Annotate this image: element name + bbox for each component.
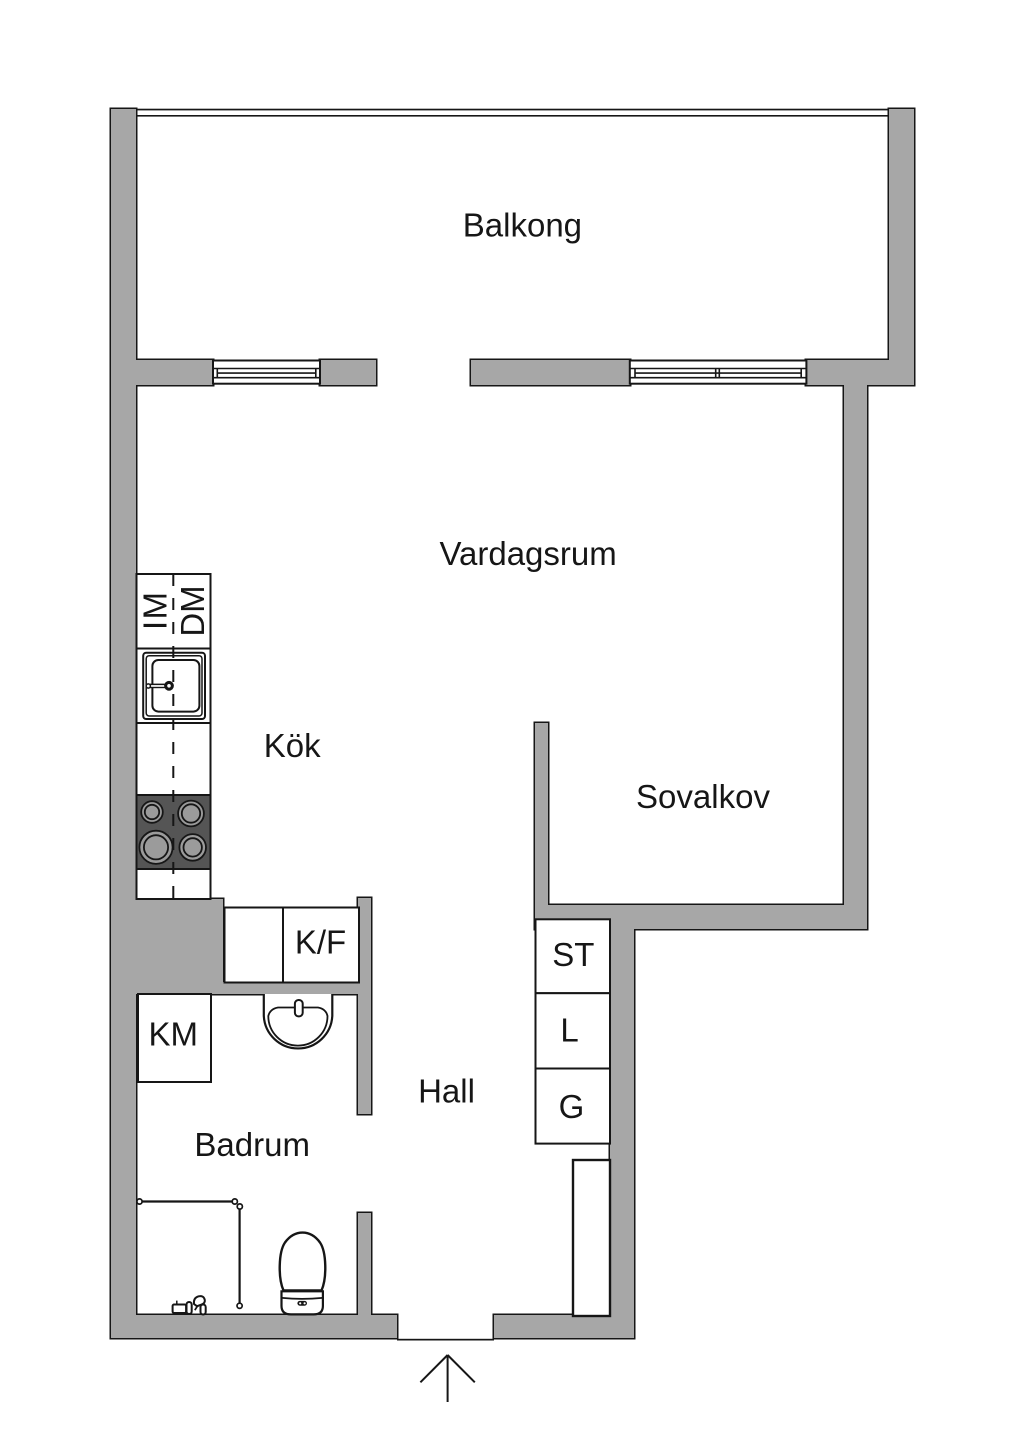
- svg-text:KM: KM: [149, 1016, 199, 1053]
- svg-text:Vardagsrum: Vardagsrum: [439, 535, 616, 572]
- svg-text:DM: DM: [174, 585, 211, 636]
- svg-text:G: G: [559, 1088, 585, 1125]
- svg-text:Balkong: Balkong: [463, 206, 582, 243]
- svg-text:IM: IM: [137, 592, 174, 630]
- svg-text:K/F: K/F: [295, 923, 346, 960]
- svg-text:ST: ST: [552, 936, 594, 973]
- svg-text:Sovalkov: Sovalkov: [636, 778, 770, 815]
- svg-text:Hall: Hall: [418, 1073, 475, 1110]
- svg-text:L: L: [560, 1012, 578, 1049]
- svg-text:Badrum: Badrum: [194, 1126, 310, 1163]
- svg-text:Kök: Kök: [264, 727, 321, 764]
